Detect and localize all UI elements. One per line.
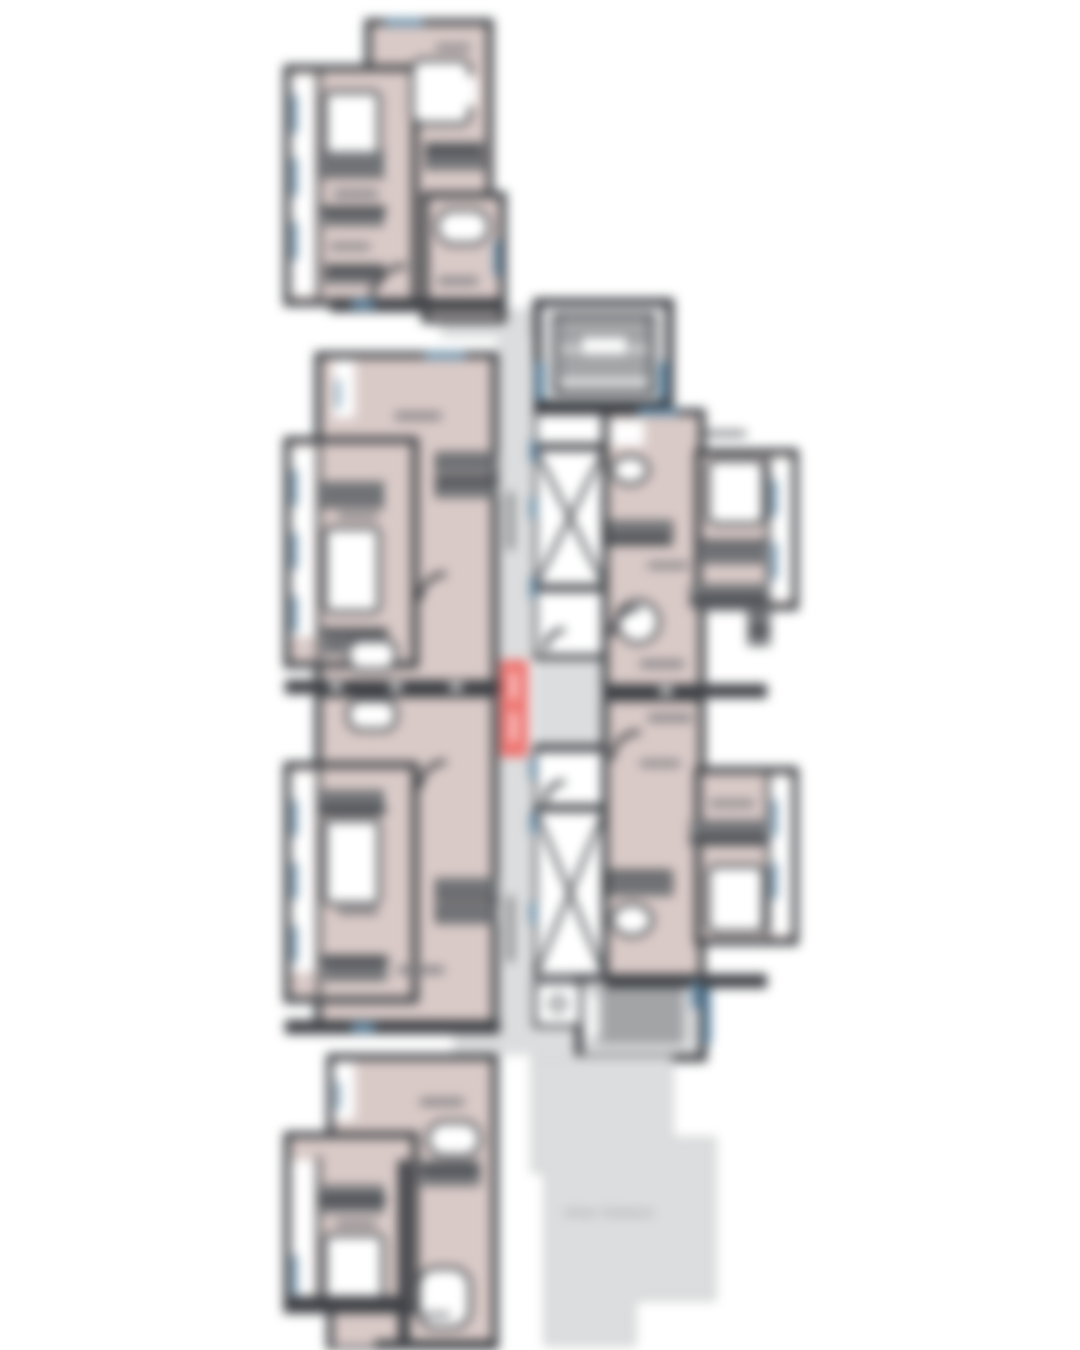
floor-plan-page: OPEN TERRACE [0, 0, 1080, 1350]
open-terrace: OPEN TERRACE [532, 1057, 715, 1345]
wc [348, 640, 396, 670]
apartment-unit-top-right [605, 408, 795, 690]
apartment-unit-top-left [287, 19, 504, 320]
kitchen-counter [690, 584, 768, 608]
corridor-dimension-text [507, 492, 514, 550]
wc [348, 700, 396, 730]
shower [610, 420, 644, 446]
toilet-vanity [608, 870, 672, 896]
lift-lobby [535, 413, 605, 445]
bed [325, 528, 379, 612]
apartment-unit-bottom-left [285, 1057, 495, 1350]
wardrobe [320, 152, 386, 178]
wardrobe [320, 790, 386, 816]
kitchen-counter [322, 955, 388, 981]
toilet-vanity [608, 520, 672, 546]
kitchen-counter [325, 264, 383, 284]
stair-flight [598, 988, 686, 1044]
wardrobe [320, 1185, 386, 1213]
dining-table [437, 210, 489, 244]
toilet-vanity [425, 142, 483, 170]
bed [708, 460, 764, 524]
wc [612, 456, 648, 484]
blurred-plan-layer: OPEN TERRACE [0, 0, 1080, 1350]
bed [708, 866, 764, 932]
kitchen-counter [322, 206, 386, 226]
open-terrace-label: OPEN TERRACE [564, 1208, 655, 1219]
corridor-dimension-text [507, 896, 514, 962]
wardrobe [320, 482, 386, 508]
apartment-unit-bottom-right [605, 698, 795, 1008]
kitchen-counter [435, 452, 495, 474]
kitchen-counter [435, 902, 495, 924]
kitchen-counter [690, 820, 768, 846]
apartment-unit-mid-left-lower [285, 694, 500, 1034]
wardrobe [700, 540, 770, 564]
staircase-upper [533, 298, 674, 412]
floor-plan-drawing: OPEN TERRACE [0, 0, 1080, 1350]
bed [325, 820, 379, 904]
refuge-marker [500, 660, 528, 757]
bed [325, 1235, 383, 1305]
apartment-unit-mid-left-upper [287, 352, 495, 685]
dining-table [428, 1122, 480, 1156]
bathtub [418, 1268, 470, 1328]
kitchen-counter [435, 878, 495, 900]
wc [535, 982, 581, 1026]
kitchen-counter [435, 476, 495, 498]
balcony [770, 776, 792, 934]
toilet-vanity [420, 1160, 480, 1186]
kitchen-counter [748, 610, 770, 646]
wc [612, 904, 652, 936]
stair-flight [561, 352, 647, 378]
